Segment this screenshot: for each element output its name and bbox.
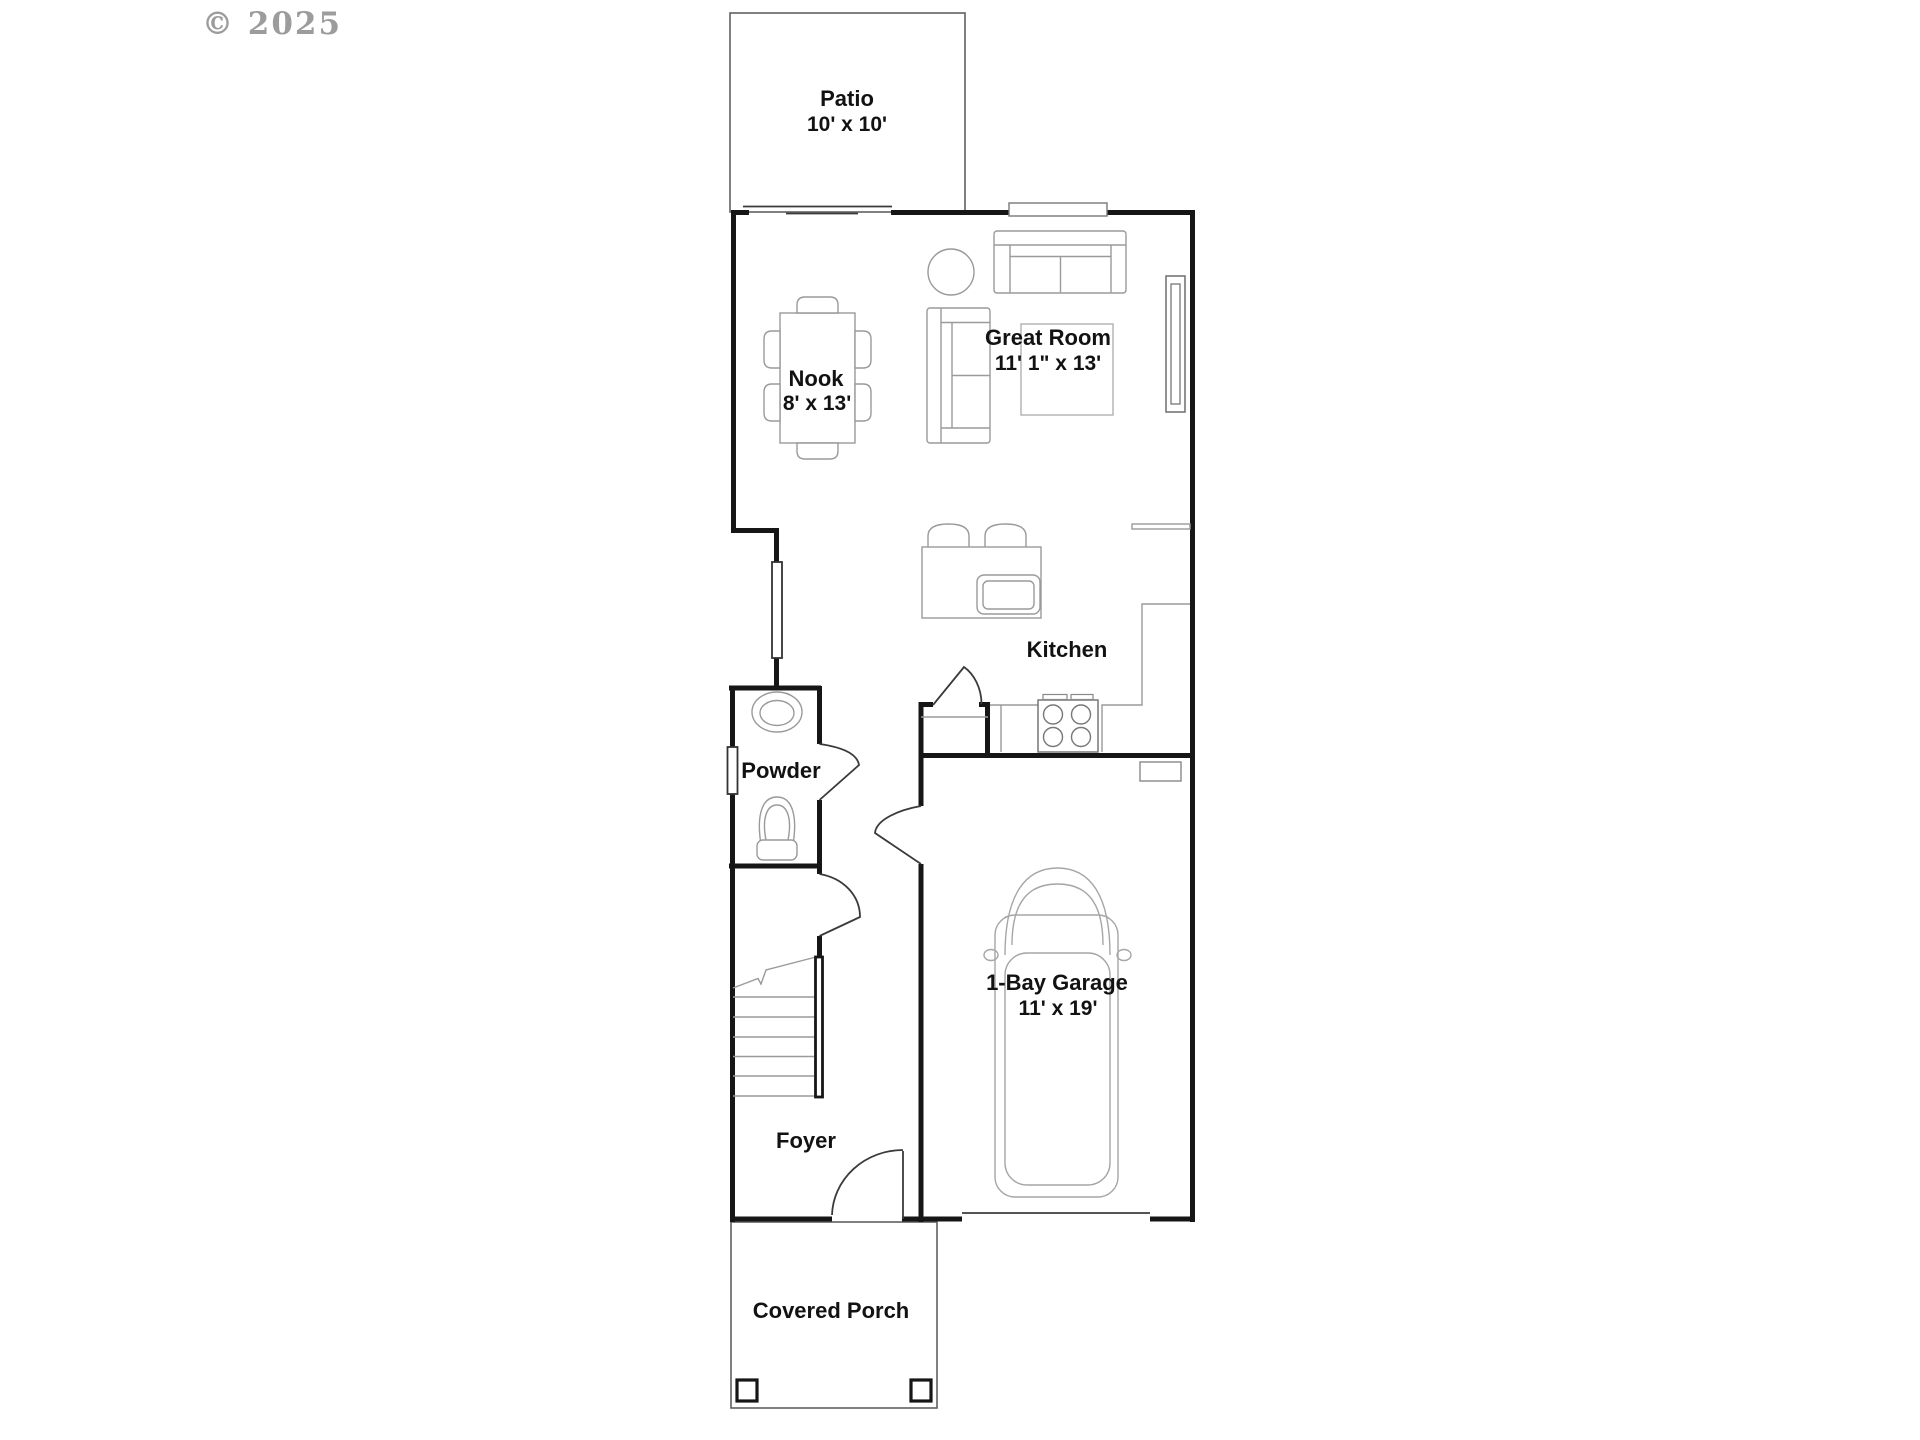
kitchen-closet-door-swing <box>933 667 982 705</box>
nook-window <box>772 562 782 658</box>
room-label-covered-porch: Covered Porch <box>753 1298 910 1323</box>
garage-opener-unit <box>1140 762 1181 781</box>
porch-post <box>911 1380 931 1401</box>
room-dim-great-room: 11' 1" x 13' <box>995 352 1101 375</box>
round-chair <box>928 249 974 295</box>
counter-edge <box>1102 604 1190 752</box>
great-room-window <box>1166 276 1185 412</box>
toilet <box>757 797 797 860</box>
room-dim-garage: 11' x 19' <box>1019 997 1098 1020</box>
counter-shelf <box>1132 524 1190 529</box>
room-label-nook: Nook <box>789 366 845 391</box>
dining-chair <box>797 297 838 313</box>
closet-door-swing <box>820 874 861 936</box>
copyright-watermark: © 2025 <box>202 6 342 42</box>
dining-chair <box>764 331 780 368</box>
stair-rail <box>816 957 823 1097</box>
dining-chair <box>797 443 838 459</box>
room-label-powder: Powder <box>741 758 821 783</box>
dining-chair <box>764 384 780 421</box>
car <box>984 868 1131 1197</box>
porch-post <box>737 1380 757 1401</box>
room-label-great-room: Great Room <box>985 325 1111 350</box>
floor-plan-drawing: © 2025 Patio 10' x 10' Great Room 11' 1"… <box>0 0 1920 1440</box>
side-mirror <box>1117 950 1131 961</box>
powder-window <box>728 747 738 794</box>
stairs <box>733 957 823 1097</box>
room-dim-nook: 8' x 13' <box>783 392 851 415</box>
floor-plan-page: © 2025 Patio 10' x 10' Great Room 11' 1"… <box>0 0 1920 1440</box>
range <box>1038 695 1098 753</box>
front-door-swing <box>832 1150 903 1219</box>
powder-door-swing <box>820 744 860 800</box>
side-mirror <box>984 950 998 961</box>
stair-direction-line <box>733 958 814 989</box>
sofa <box>994 231 1126 293</box>
loveseat <box>927 308 990 443</box>
dining-chair <box>855 384 871 421</box>
stool <box>985 524 1026 547</box>
room-label-kitchen: Kitchen <box>1027 637 1108 662</box>
bathroom-sink <box>752 692 802 732</box>
great-room-furniture <box>927 203 1126 443</box>
room-dim-patio: 10' x 10' <box>807 113 887 136</box>
room-label-patio: Patio <box>820 86 874 111</box>
dining-chair <box>855 331 871 368</box>
stool <box>928 524 969 547</box>
room-label-garage: 1-Bay Garage <box>986 970 1128 995</box>
garage-entry-door-swing <box>875 806 921 864</box>
tv-console <box>1009 203 1107 216</box>
room-label-foyer: Foyer <box>776 1128 836 1153</box>
